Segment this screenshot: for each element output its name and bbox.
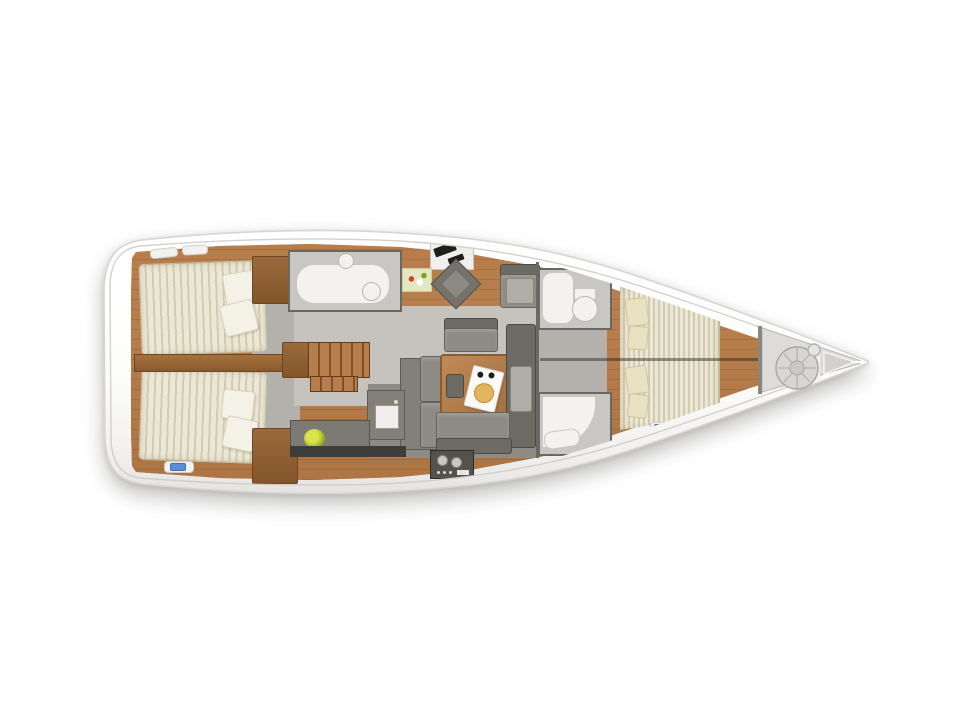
armchair-cushion <box>506 278 534 304</box>
pillow <box>625 297 650 327</box>
faucet-icon <box>394 400 398 404</box>
cup-icon <box>488 372 495 379</box>
stair-side-cabinet <box>282 342 310 378</box>
deck-hatch-handle <box>182 244 208 255</box>
companionway-lower-steps <box>310 376 358 392</box>
stove <box>430 450 474 479</box>
washbasin-icon <box>338 253 354 269</box>
sofa-seat-top <box>444 328 498 352</box>
pillow <box>624 365 650 396</box>
cup-icon <box>477 371 484 378</box>
pillow <box>626 393 649 420</box>
burner-icon <box>437 455 448 466</box>
cabin-divider <box>134 354 302 372</box>
yacht-floorplan <box>0 0 960 720</box>
pillow <box>627 325 649 351</box>
galley-sink <box>375 405 399 429</box>
companionway-stairs <box>308 342 370 378</box>
sofa-cushion-right <box>510 366 532 412</box>
stove-knob <box>443 471 446 474</box>
centerline-seam <box>540 358 856 361</box>
deck-fitting-blue <box>170 463 186 471</box>
galley-oven-front <box>290 446 406 457</box>
table-leaf-gap <box>446 374 464 398</box>
shower-pan <box>542 272 574 324</box>
galley-artwork <box>402 268 432 292</box>
stove-knob <box>437 471 440 474</box>
aft-cabinet-top <box>252 256 292 304</box>
stove-label <box>457 470 469 475</box>
toilet-icon <box>572 296 598 322</box>
stove-knob <box>449 471 452 474</box>
toilet-icon <box>362 282 381 301</box>
burner-icon <box>451 457 462 468</box>
bread-plate <box>472 381 496 405</box>
